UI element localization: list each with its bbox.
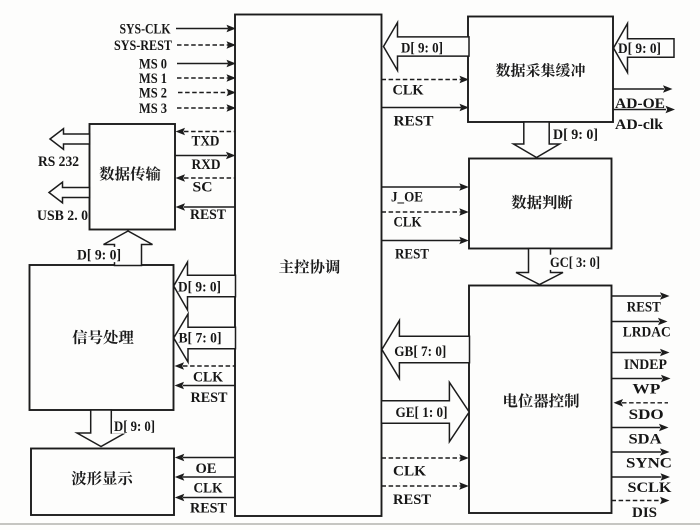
svg-text:D[ 9: 0]: D[ 9: 0] xyxy=(114,419,155,435)
svg-text:RXD: RXD xyxy=(192,157,221,173)
svg-text:REST: REST xyxy=(395,246,429,262)
svg-text:J_OE: J_OE xyxy=(391,189,423,205)
svg-text:GB[ 7: 0]: GB[ 7: 0] xyxy=(394,344,446,360)
svg-text:USB 2. 0: USB 2. 0 xyxy=(37,208,88,224)
svg-text:D[ 9: 0]: D[ 9: 0] xyxy=(178,279,221,295)
svg-text:D[ 9: 0]: D[ 9: 0] xyxy=(77,247,121,263)
svg-text:REST: REST xyxy=(394,113,434,129)
svg-text:SCLK: SCLK xyxy=(628,480,673,496)
svg-text:REST: REST xyxy=(393,492,431,508)
svg-text:D[ 9: 0]: D[ 9: 0] xyxy=(618,41,661,57)
svg-text:REST: REST xyxy=(190,500,227,516)
svg-text:SYS-REST: SYS-REST xyxy=(114,38,172,54)
svg-text:D[ 9: 0]: D[ 9: 0] xyxy=(401,40,443,56)
svg-text:RS 232: RS 232 xyxy=(38,154,79,170)
svg-text:CLK: CLK xyxy=(393,82,425,98)
svg-text:CLK: CLK xyxy=(194,480,224,496)
svg-text:AD-clk: AD-clk xyxy=(615,117,664,133)
svg-text:SYS-CLK: SYS-CLK xyxy=(120,21,172,37)
svg-text:WP: WP xyxy=(632,382,660,398)
svg-text:SDA: SDA xyxy=(629,431,663,447)
svg-text:CLK: CLK xyxy=(193,369,224,385)
svg-text:SYNC: SYNC xyxy=(626,455,672,471)
svg-text:MS 2: MS 2 xyxy=(139,85,167,101)
svg-text:TXD: TXD xyxy=(192,133,220,149)
svg-text:OE: OE xyxy=(196,461,217,477)
svg-text:MS 3: MS 3 xyxy=(139,101,167,117)
svg-text:SDO: SDO xyxy=(629,407,664,423)
svg-text:REST: REST xyxy=(191,390,228,406)
svg-text:B[ 7: 0]: B[ 7: 0] xyxy=(179,330,222,346)
svg-text:DIS: DIS xyxy=(632,505,657,521)
svg-text:D[ 9: 0]: D[ 9: 0] xyxy=(553,127,598,143)
svg-text:CLK: CLK xyxy=(394,214,423,230)
svg-text:CLK: CLK xyxy=(393,463,427,479)
svg-text:GE[ 1: 0]: GE[ 1: 0] xyxy=(396,405,448,421)
svg-text:REST: REST xyxy=(627,300,661,316)
svg-text:REST: REST xyxy=(190,207,226,223)
svg-text:INDEP: INDEP xyxy=(624,357,667,373)
svg-text:LRDAC: LRDAC xyxy=(623,324,671,340)
svg-text:SC: SC xyxy=(193,179,213,195)
svg-text:GC[ 3: 0]: GC[ 3: 0] xyxy=(550,255,600,271)
